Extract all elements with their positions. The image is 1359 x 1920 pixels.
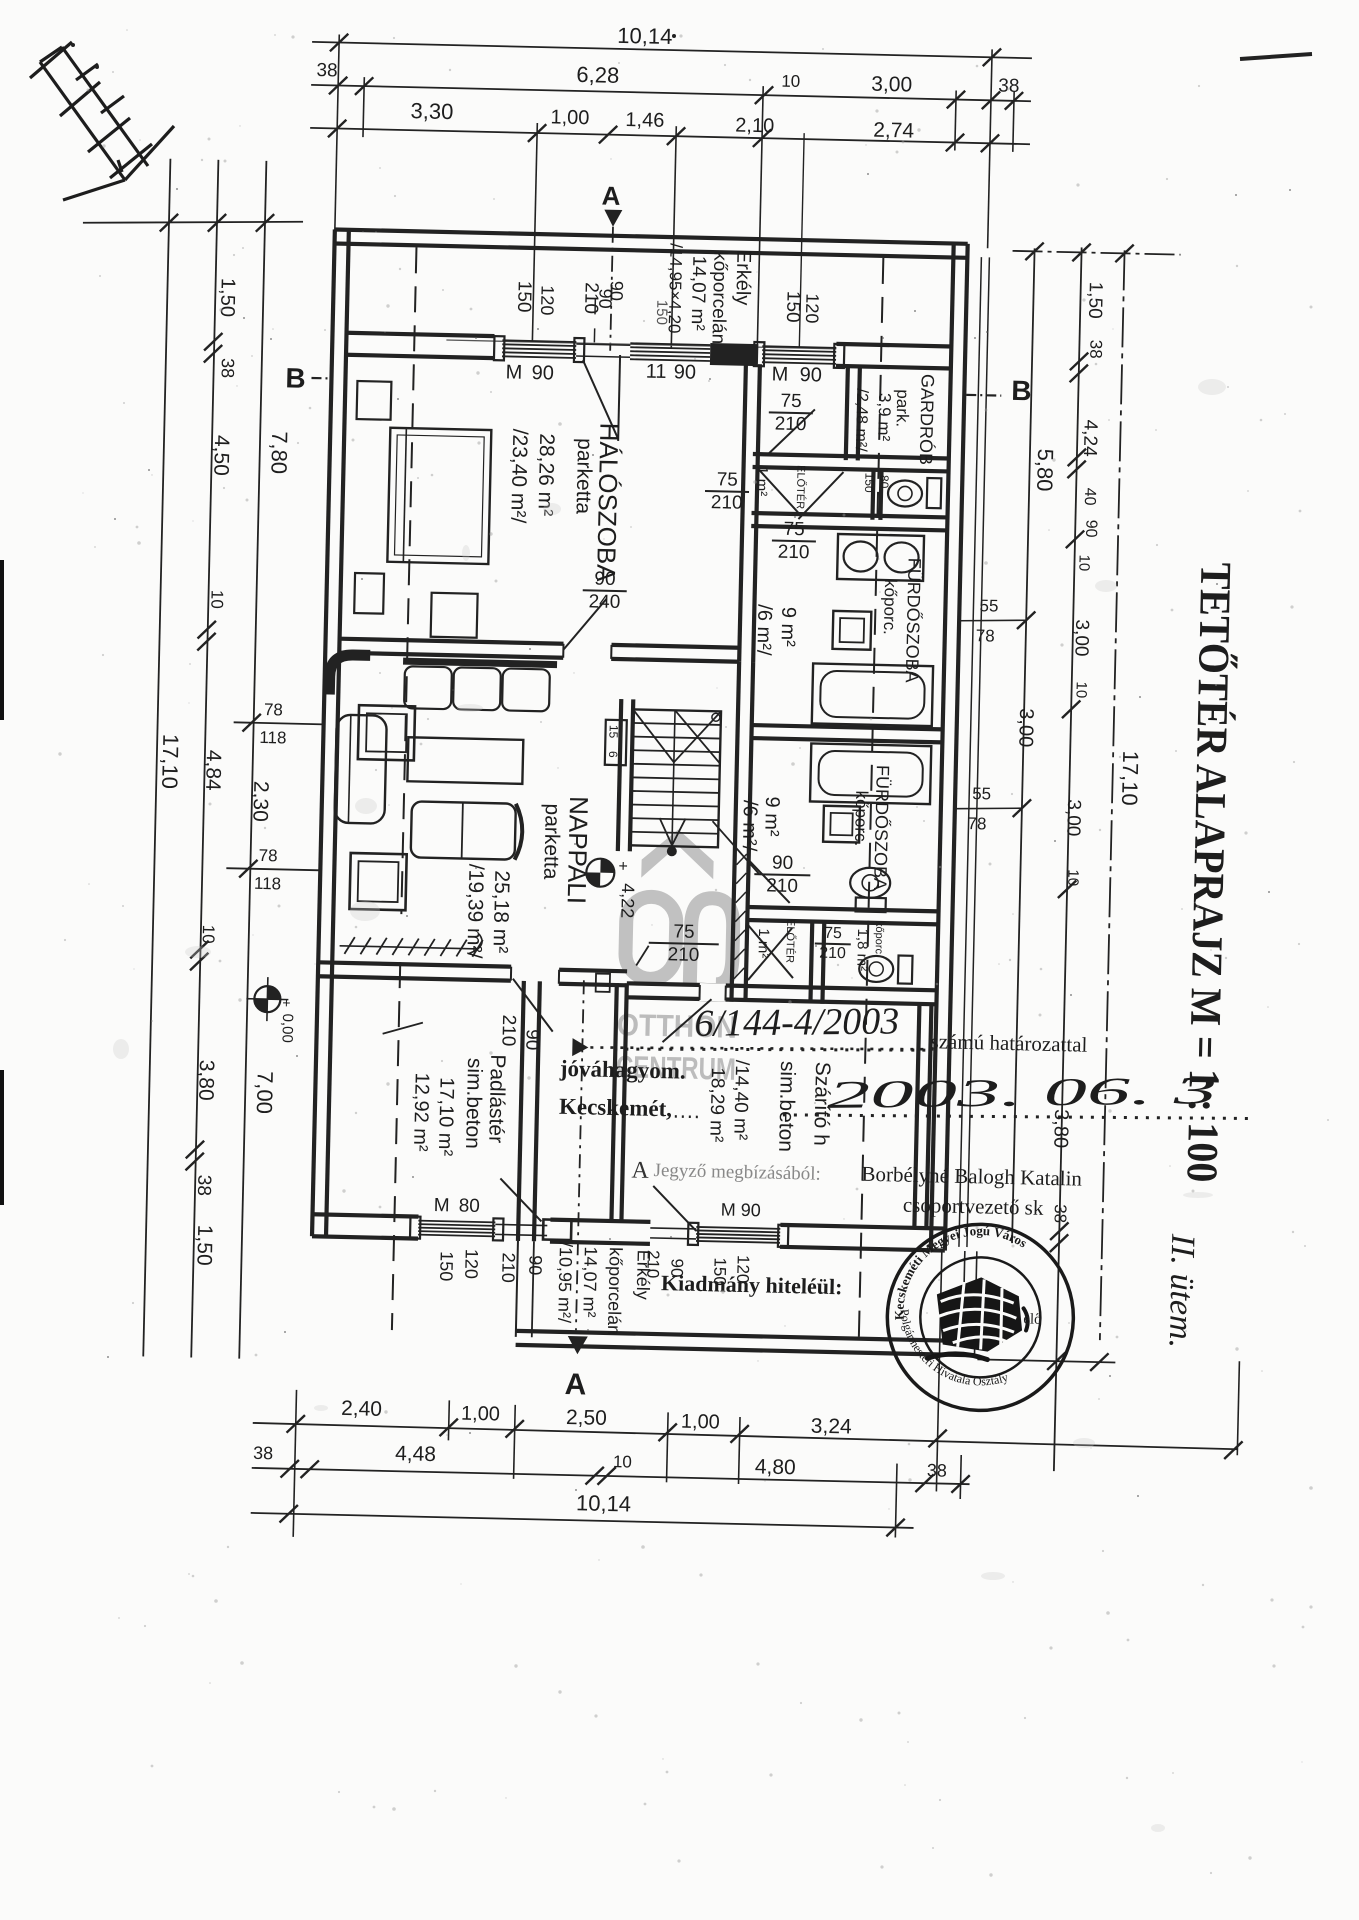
svg-text:9 m²: 9 m² — [777, 607, 800, 648]
svg-text:17,10 m²: 17,10 m² — [434, 1077, 458, 1157]
svg-text:/23,40 m²/: /23,40 m²/ — [506, 428, 531, 523]
svg-text:A: A — [631, 1157, 650, 1183]
svg-text:10,14: 10,14 — [617, 23, 673, 49]
svg-text:80: 80 — [458, 1196, 480, 1217]
svg-text:parketta: parketta — [539, 803, 564, 880]
svg-text:10: 10 — [781, 72, 800, 91]
svg-text:17,10: 17,10 — [1117, 750, 1143, 806]
svg-text:/2,48 m²/: /2,48 m²/ — [852, 388, 870, 452]
svg-text:sim.beton: sim.beton — [774, 1061, 799, 1153]
svg-text:+: + — [618, 858, 628, 875]
svg-text:0,00: 0,00 — [278, 1013, 296, 1043]
svg-text:210: 210 — [497, 1014, 519, 1046]
svg-text:3,24: 3,24 — [811, 1415, 853, 1439]
svg-text:90: 90 — [521, 1029, 542, 1051]
svg-text:kőporcelán: kőporcelán — [604, 1247, 626, 1335]
svg-text:120: 120 — [461, 1249, 482, 1279]
svg-text:1,50: 1,50 — [192, 1225, 216, 1266]
svg-text:NAPPALI: NAPPALI — [562, 796, 594, 905]
svg-text:sim.beton: sim.beton — [461, 1058, 486, 1150]
svg-text:kőporc.: kőporc. — [880, 579, 900, 635]
svg-text:1,00: 1,00 — [550, 106, 589, 129]
svg-text:+: + — [282, 994, 291, 1010]
svg-text:38: 38 — [316, 60, 338, 81]
svg-text:1,50: 1,50 — [1084, 282, 1106, 319]
svg-text:11: 11 — [645, 361, 666, 383]
svg-text:90: 90 — [772, 853, 794, 874]
svg-text:210: 210 — [711, 492, 743, 514]
svg-text:kőporcelán: kőporcelán — [707, 251, 730, 344]
svg-text:jóváhagyom.: jóváhagyom. — [559, 1056, 686, 1084]
svg-text:210: 210 — [778, 542, 810, 564]
svg-text:210: 210 — [766, 875, 798, 897]
svg-text:1 m²: 1 m² — [754, 928, 772, 958]
svg-text:II. ütem.: II. ütem. — [1162, 1233, 1202, 1349]
svg-text:2003. 06. 3: 2003. 06. 3 — [827, 1069, 1217, 1117]
svg-text:Jegyző megbízásából:: Jegyző megbízásából: — [653, 1160, 821, 1185]
svg-text:10: 10 — [1064, 869, 1081, 886]
svg-text:M 90: M 90 — [720, 1199, 760, 1220]
svg-text:7,80: 7,80 — [266, 431, 292, 474]
svg-text:B: B — [285, 362, 306, 393]
svg-text:6: 6 — [606, 751, 620, 758]
svg-text:90: 90 — [595, 288, 615, 308]
svg-text:90: 90 — [799, 364, 822, 386]
svg-text:park.: park. — [893, 389, 913, 427]
svg-text:1,8 m²: 1,8 m² — [853, 928, 871, 971]
svg-text:75: 75 — [783, 519, 805, 540]
svg-text:M: M — [771, 363, 788, 385]
svg-text:14,07 m²: 14,07 m² — [579, 1246, 601, 1317]
svg-text:90: 90 — [673, 361, 696, 383]
svg-text:3,30: 3,30 — [410, 98, 453, 124]
svg-text:ELŐTÉR: ELŐTÉR — [783, 919, 798, 963]
svg-text:B: B — [1011, 375, 1032, 406]
svg-text:210: 210 — [819, 945, 846, 963]
svg-text:210: 210 — [774, 414, 806, 436]
svg-text:90: 90 — [525, 1255, 545, 1275]
svg-text:elő: elő — [1023, 1311, 1042, 1327]
svg-text:25,18 m²: 25,18 m² — [488, 870, 513, 953]
svg-text:ELŐTÉR: ELŐTÉR — [794, 465, 809, 509]
svg-text:A: A — [601, 181, 621, 211]
svg-text:150: 150 — [513, 281, 535, 313]
svg-text:150: 150 — [862, 473, 876, 494]
svg-text:210: 210 — [667, 944, 699, 966]
svg-text:38: 38 — [1086, 340, 1105, 359]
svg-text:/19,39 m²/: /19,39 m²/ — [462, 864, 487, 959]
svg-text:A: A — [564, 1368, 586, 1401]
svg-text:38: 38 — [1051, 1204, 1070, 1223]
svg-text:75: 75 — [716, 469, 738, 490]
svg-text:5,80: 5,80 — [1032, 448, 1058, 491]
svg-text:/6 m²/: /6 m²/ — [738, 800, 761, 852]
svg-text:1,50: 1,50 — [216, 278, 239, 317]
svg-text:FÜRDŐSZOBA: FÜRDŐSZOBA — [870, 765, 894, 890]
svg-text:1,00: 1,00 — [461, 1403, 500, 1426]
svg-text:4,80: 4,80 — [755, 1455, 796, 1479]
svg-text:1,00: 1,00 — [681, 1411, 720, 1434]
svg-text:120: 120 — [537, 285, 558, 315]
svg-text:75: 75 — [824, 925, 842, 942]
svg-text:10,14: 10,14 — [576, 1490, 632, 1516]
svg-text:M: M — [434, 1195, 450, 1216]
svg-text:210: 210 — [498, 1252, 519, 1282]
svg-text:4,84: 4,84 — [201, 750, 225, 792]
svg-text:38: 38 — [217, 358, 237, 378]
svg-text:6,28: 6,28 — [576, 62, 619, 88]
svg-text:38: 38 — [193, 1175, 214, 1197]
svg-text:3,80: 3,80 — [1049, 1109, 1072, 1148]
svg-text:3,80: 3,80 — [194, 1060, 218, 1101]
svg-text:90: 90 — [1082, 520, 1099, 538]
svg-text:Kecskemét,: Kecskemét, — [559, 1094, 673, 1122]
svg-text:/10,95 m²/: /10,95 m²/ — [554, 1242, 576, 1323]
svg-text:78: 78 — [976, 626, 995, 645]
svg-text:10: 10 — [613, 1452, 632, 1471]
svg-text:120: 120 — [802, 293, 823, 323]
svg-text:4,22: 4,22 — [617, 883, 638, 918]
svg-text:csoportvezető sk: csoportvezető sk — [903, 1193, 1045, 1220]
svg-text:7,00: 7,00 — [252, 1071, 278, 1114]
svg-text:38: 38 — [998, 75, 1020, 96]
svg-text:kőporc: kőporc — [873, 921, 886, 955]
svg-text:Padlástér: Padlástér — [484, 1054, 509, 1143]
svg-text:Kiadmány hiteléül:: Kiadmány hiteléül: — [661, 1270, 843, 1299]
svg-text:3,00: 3,00 — [1062, 799, 1084, 836]
svg-text:M: M — [505, 361, 522, 383]
svg-text:/14,40 m²: /14,40 m² — [729, 1060, 752, 1141]
svg-text:3,9 m²: 3,9 m² — [874, 393, 894, 442]
svg-text:18,29 m²: 18,29 m² — [705, 1067, 728, 1142]
svg-text:2,40: 2,40 — [341, 1397, 382, 1421]
svg-text:78: 78 — [264, 700, 283, 719]
svg-text:/6 m²/: /6 m²/ — [752, 604, 775, 656]
svg-text:1,46: 1,46 — [625, 109, 664, 132]
svg-text:6/144-4/2003: 6/144-4/2003 — [694, 1000, 899, 1044]
svg-text:150: 150 — [653, 300, 671, 325]
svg-text:118: 118 — [254, 874, 282, 894]
svg-text:FÜRDŐSZOBA: FÜRDŐSZOBA — [902, 557, 926, 682]
svg-text:55: 55 — [972, 784, 991, 803]
svg-text:10: 10 — [1072, 681, 1089, 698]
svg-text:75: 75 — [673, 921, 695, 942]
svg-text:GARDRÓB: GARDRÓB — [916, 374, 939, 465]
svg-text:3,00: 3,00 — [871, 73, 912, 97]
svg-text:17,10: 17,10 — [157, 734, 183, 790]
svg-text:10: 10 — [207, 590, 226, 609]
svg-text:Borbélyné Balogh Katalin: Borbélyné Balogh Katalin — [861, 1162, 1082, 1191]
svg-text:9 m²: 9 m² — [760, 796, 783, 837]
svg-text:12,92 m²: 12,92 m² — [409, 1072, 433, 1152]
svg-text:150: 150 — [782, 291, 804, 323]
svg-text:2,74: 2,74 — [873, 119, 915, 143]
svg-text:2,30: 2,30 — [248, 781, 272, 822]
svg-text:90: 90 — [531, 362, 554, 384]
svg-text:4,50: 4,50 — [209, 435, 233, 476]
svg-text:számú határozattal: számú határozattal — [930, 1029, 1088, 1057]
svg-text:78: 78 — [258, 846, 277, 865]
svg-text:4,48: 4,48 — [395, 1442, 436, 1466]
svg-text:75: 75 — [780, 391, 802, 412]
svg-text:parketta: parketta — [571, 438, 596, 515]
svg-text:kőporc.: kőporc. — [851, 790, 871, 846]
svg-text:15: 15 — [606, 725, 620, 739]
svg-text:90: 90 — [594, 568, 616, 589]
svg-text:118: 118 — [259, 728, 287, 748]
svg-text:3,00: 3,00 — [1070, 619, 1092, 656]
svg-text:40: 40 — [1081, 487, 1098, 505]
svg-text:2,10: 2,10 — [735, 115, 774, 138]
svg-text:3,00: 3,00 — [1014, 708, 1037, 747]
svg-text:Erkély: Erkély — [731, 250, 754, 306]
svg-text:210: 210 — [643, 1250, 663, 1279]
svg-text:38: 38 — [253, 1443, 273, 1463]
svg-text:150: 150 — [436, 1251, 457, 1281]
svg-text:2,50: 2,50 — [566, 1406, 607, 1430]
svg-text:240: 240 — [588, 591, 620, 613]
svg-text:10: 10 — [1075, 554, 1092, 571]
svg-text:14,07 m²: 14,07 m² — [687, 256, 710, 331]
